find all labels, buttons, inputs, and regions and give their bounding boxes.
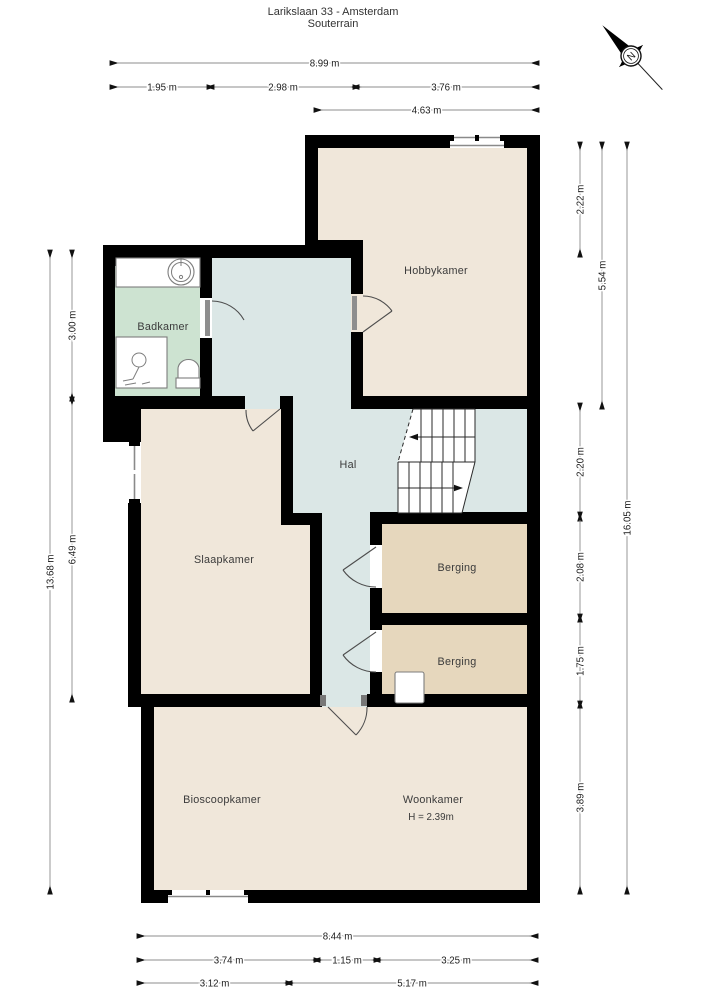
dim-label: 3.89 m (576, 783, 587, 813)
wall-hobby-top-left (305, 135, 450, 148)
dim-label: 8.44 m (323, 932, 353, 943)
room-label-bioscoopkamer: Bioscoopkamer (183, 794, 261, 806)
dim-label: 2.98 m (268, 83, 298, 94)
stairs (398, 409, 475, 513)
wall-bioscoop-left (141, 694, 154, 903)
floorplan-page: Larikslaan 33 - Amsterdam Souterrain (0, 0, 707, 1000)
wall-berging-divider (370, 613, 540, 625)
window-hobbykamer-top (450, 135, 504, 148)
dim-top-badkamer: 1.95 m (118, 83, 206, 94)
room-hal-upper (212, 257, 351, 409)
dim-label: 2.08 m (576, 552, 587, 582)
room-label-woonkamer: Woonkamer (403, 794, 463, 806)
dim-left-slaapkamer: 6.49 m (68, 405, 79, 694)
dim-top-overall: 8.99 m (118, 59, 531, 70)
dim-right-woonkamer: 3.89 m (576, 709, 587, 886)
dim-label: 6.49 m (68, 535, 79, 565)
dim-label: 1.75 m (576, 646, 587, 676)
dim-left-badkamer: 3.00 m (68, 258, 79, 393)
dim-top-hobbykamer-outer: 4.63 m (322, 106, 531, 117)
dim-label: 3.00 m (68, 311, 79, 341)
dim-label: 8.99 m (310, 59, 340, 70)
dim-label: 16.05 m (623, 500, 634, 535)
room-hal-corridor (322, 512, 370, 707)
washbasin-counter (116, 258, 200, 287)
dim-bottom-left: 3.74 m (145, 956, 312, 967)
window-bioscoopkamer-bottom (168, 890, 248, 903)
boiler-icon (395, 672, 424, 703)
dim-right-stairhall: 2.20 m (576, 411, 587, 513)
title-floor: Souterrain (308, 18, 359, 30)
dim-label: 3.25 m (441, 956, 471, 967)
wall-bottom-b (248, 890, 540, 903)
wall-slaapkamer-left (128, 503, 141, 706)
dim-bottom-right2: 5.17 m (294, 979, 530, 990)
wall-berging-left-a (370, 512, 382, 545)
room-label-hal: Hal (340, 459, 357, 471)
wall-hal-hobby-lower (351, 332, 363, 396)
wall-bottom-band-right (367, 694, 540, 707)
wall-bottom-a (141, 890, 168, 903)
toilet-tank-icon (176, 378, 200, 388)
dim-label: 3.12 m (200, 979, 230, 990)
wall-berging-top (370, 512, 540, 524)
toilet-bowl-icon (178, 360, 199, 379)
dim-bottom-left2: 3.12 m (145, 979, 284, 990)
room-height-note-woonkamer: H = 2.39m (408, 812, 453, 823)
dim-right-hobby-full: 5.54 m (598, 150, 609, 401)
dim-label: 5.17 m (397, 979, 427, 990)
dim-label: 5.54 m (598, 261, 609, 291)
wall-badkamer-right-lower (200, 338, 212, 396)
dim-right-berging-1: 2.08 m (576, 520, 587, 614)
dim-bottom-overall: 8.44 m (145, 932, 530, 943)
dim-label: 4.63 m (412, 106, 442, 117)
wall-slaapkamer-right-lower (310, 513, 322, 706)
shower (116, 337, 167, 388)
dim-top-hobbykamer: 3.76 m (361, 83, 531, 94)
wall-hal-hobby-upper (351, 253, 363, 294)
dim-label: 1.95 m (147, 83, 177, 94)
dim-label: 2.20 m (576, 447, 587, 477)
plan-title: Larikslaan 33 - Amsterdam Souterrain (268, 6, 399, 30)
dim-label: 3.74 m (214, 956, 244, 967)
room-label-badkamer: Badkamer (137, 321, 188, 333)
room-hal-opening (293, 396, 351, 410)
toilet (176, 360, 200, 389)
title-address: Larikslaan 33 - Amsterdam (268, 6, 399, 18)
dim-right-berging-2: 1.75 m (576, 622, 587, 700)
dim-right-total: 16.05 m (623, 150, 634, 886)
dim-bottom-right: 3.25 m (382, 956, 530, 967)
room-label-hobbykamer: Hobbykamer (404, 265, 468, 277)
floorplan-canvas: Larikslaan 33 - Amsterdam Souterrain (0, 0, 707, 1000)
wall-mid-band-a (103, 396, 245, 409)
room-label-berging-1: Berging (438, 562, 477, 574)
room-label-slaapkamer: Slaapkamer (194, 554, 254, 566)
dim-left-overall: 13.68 m (46, 258, 57, 886)
dim-label: 3.76 m (431, 83, 461, 94)
wall-slaapkamer-right-upper (281, 409, 293, 513)
wall-hobby-left (305, 135, 318, 253)
wall-badkamer-right-upper (200, 257, 212, 298)
dim-label: 13.68 m (46, 554, 57, 589)
room-label-berging-2: Berging (438, 656, 477, 668)
dim-bottom-corridor: 1.15 m (322, 956, 372, 967)
wall-hobby-bottom (351, 396, 540, 409)
wall-top-badkamer-hal (103, 245, 363, 258)
wall-mid-band-b (280, 396, 293, 409)
wall-bottom-band-left (128, 694, 322, 707)
compass-north-icon: N (591, 14, 674, 100)
dim-label: 1.15 m (332, 956, 362, 967)
dim-label: 2.22 m (576, 185, 587, 215)
dim-top-hal: 2.98 m (215, 83, 351, 94)
dim-right-hobby-upper: 2.22 m (576, 150, 587, 249)
window-slaapkamer-left (128, 442, 141, 503)
